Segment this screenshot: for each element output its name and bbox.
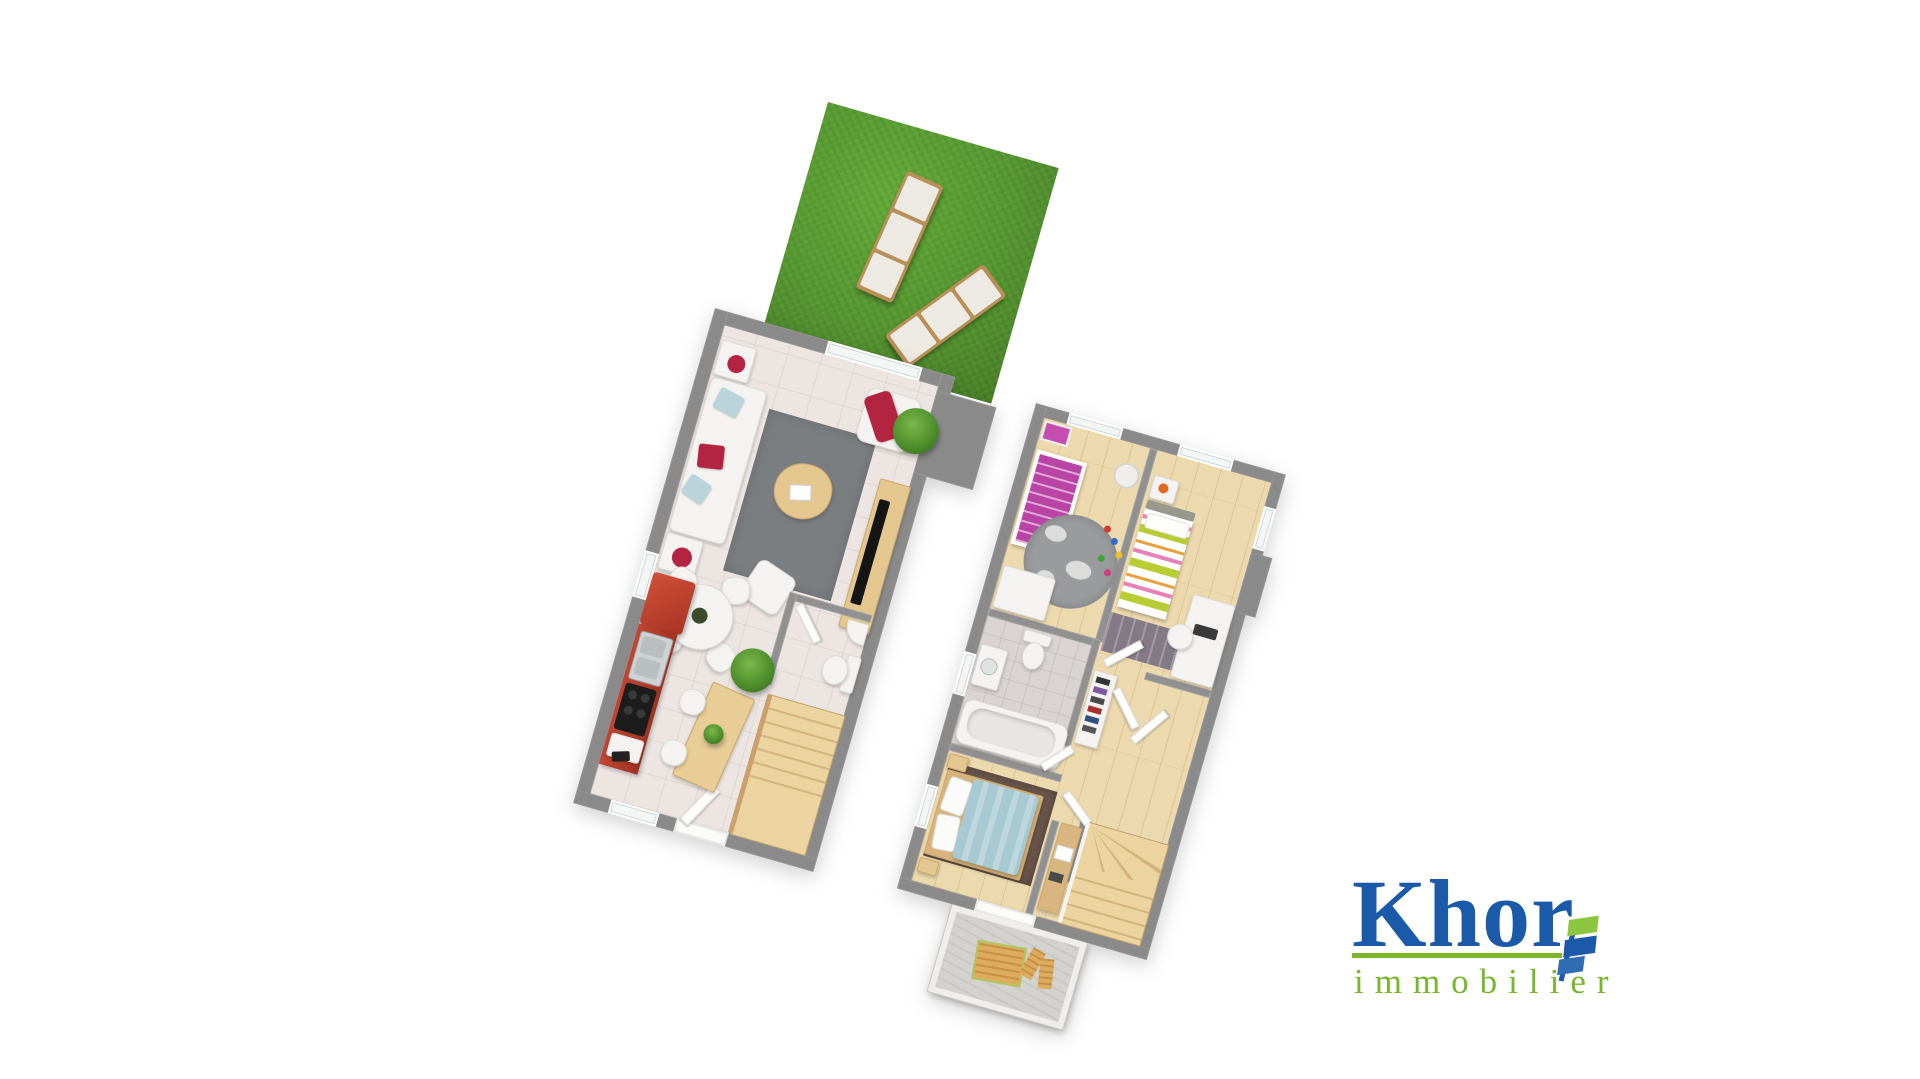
coffee-maker [612,751,630,762]
balcony-table [971,939,1027,987]
flag-band-green [1567,916,1599,937]
sofa-cushion-red [697,443,725,470]
flag-band-blue [1563,936,1597,958]
magazine [789,484,812,501]
logo-underline [1352,953,1562,958]
logo-wordmark: Khor [1352,866,1575,962]
floor-plan-poster: Khor immobilier [0,0,1920,1079]
balcony-chair [1038,958,1055,989]
ground-floor-plan [573,308,955,872]
upper-floor-plan [897,403,1286,960]
